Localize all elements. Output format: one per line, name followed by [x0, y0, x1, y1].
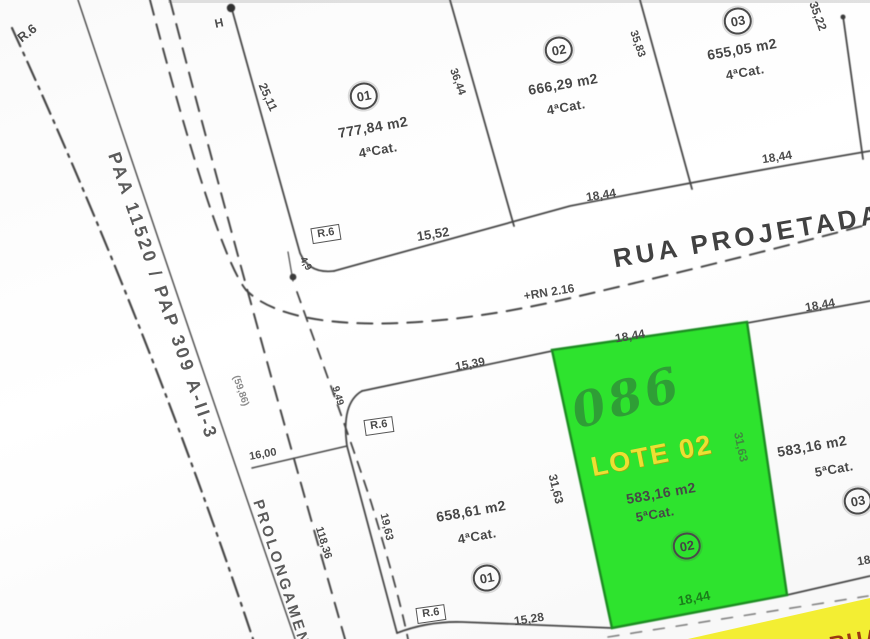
lote-02-number: 02 [671, 530, 704, 562]
r6-box-bottom: R.6 [415, 604, 446, 624]
r6-box-street-corner: R.6 [310, 224, 341, 244]
lot-01-bottom-number: 01 [471, 562, 504, 594]
lote-02-label: LOTE 02 [589, 431, 715, 481]
dim-18-44-lot03-bottom: 18,44 [856, 550, 870, 567]
rn-benchmark: +RN 2.16 [523, 282, 575, 302]
street-label-rua-projetada: RUA PROJETADA [611, 201, 870, 272]
dim-35-22: 35,22 [807, 0, 829, 32]
dim-9-49: 9,49 [330, 385, 345, 406]
lot-03-bottom-category: 5ªCat. [814, 459, 855, 479]
cadastral-plat-map: R.6H25,11PAA 11520 / PAP 309 A-II-3(59,8… [0, 0, 870, 639]
dim-36-44: 36,44 [447, 67, 467, 97]
lot-01-bottom-area: 658,61 m2 [435, 498, 507, 524]
lot-01-bottom-category: 4ªCat. [457, 526, 498, 546]
dim-15-39: 15,39 [454, 355, 486, 373]
lot-03-bottom-number: 03 [842, 485, 870, 517]
road-label-prolongamento: PROLONGAMEN [250, 498, 312, 639]
dim-25-11: 25,11 [257, 81, 280, 113]
dim-15-28: 15,28 [513, 611, 545, 628]
dim-15-52: 15,52 [416, 225, 450, 243]
dim-18-44-lot03b-top: 18,44 [804, 296, 836, 313]
dim-18-44-lot03-front: 18,44 [761, 149, 793, 166]
lot-02-top-area: 666,29 m2 [527, 71, 599, 97]
lot-02-top-category: 4ªCat. [546, 97, 587, 117]
street-label-bottom: RUA PROJ [828, 612, 870, 639]
dim-59-86: (59,86) [230, 374, 250, 407]
h-marker: H [214, 16, 225, 30]
dim-19-63: 19,63 [378, 512, 395, 541]
r6-box-lower-corner: R.6 [363, 416, 394, 436]
dim-31-63-right: 31,63 [732, 431, 750, 463]
dim-18-44-lot02-front: 18,44 [585, 187, 617, 204]
lot-01-top-category: 4ªCat. [358, 140, 399, 160]
road-label-paa: PAA 11520 / PAP 309 A-II-3 [105, 150, 221, 442]
map-labels: R.6H25,11PAA 11520 / PAP 309 A-II-3(59,8… [0, 0, 870, 639]
dim-18-44-green-top: 18,44 [614, 327, 646, 344]
lot-03-top-area: 655,05 m2 [706, 36, 778, 62]
lot-02-top-number: 02 [543, 34, 576, 66]
dim-35-83: 35,83 [627, 29, 646, 59]
dim-18-44-green-bottom: 18,44 [677, 589, 711, 608]
dim-4-9: 4,9 [297, 255, 313, 272]
r6-curve-topleft: R.6 [15, 22, 39, 45]
lote-02-area: 583,16 m2 [625, 480, 697, 506]
dim-16-00: 16,00 [248, 447, 277, 463]
handwritten-086: 086 [566, 359, 687, 436]
lot-03-top-category: 4ªCat. [725, 62, 766, 82]
dim-118-36: 118,36 [313, 526, 333, 561]
dim-31-63-left: 31,63 [547, 473, 566, 505]
lote-02-category: 5ªCat. [635, 504, 676, 524]
lot-03-bottom-area: 583,16 m2 [776, 433, 848, 459]
lot-01-top-number: 01 [348, 80, 381, 112]
lot-01-top-area: 777,84 m2 [337, 114, 409, 140]
lot-03-top-number: 03 [722, 5, 755, 37]
